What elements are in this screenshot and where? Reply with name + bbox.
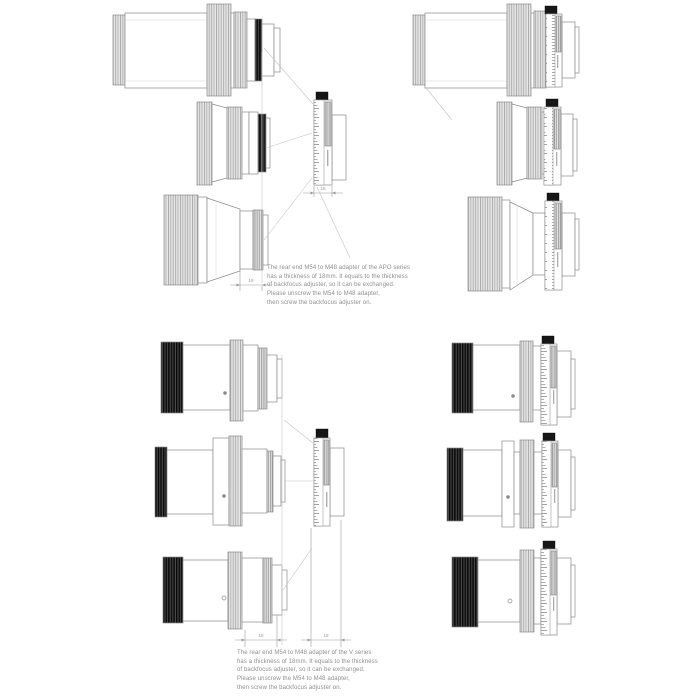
- v-series-note: The rear end M54 to M48 adapter of the V…: [237, 649, 437, 692]
- v-lens-1: [161, 340, 282, 421]
- apo-lens-large: [164, 195, 268, 285]
- v-dimension-adjuster: 18: [301, 520, 351, 647]
- apo-panel: 18 18: [113, 4, 579, 291]
- apo-dimension-adjuster: 18: [303, 186, 343, 197]
- apo-adapter-dim-label: 18: [248, 278, 254, 283]
- v-lens-3-with-adjuster: [452, 541, 575, 635]
- apo-lens-medium: [197, 102, 270, 185]
- apo-series-note: The rear end M54 to M48 adapter of the A…: [267, 264, 467, 307]
- backfocus-adjuster-v: [314, 429, 344, 526]
- v-panel: 18 18: [155, 336, 575, 647]
- v-lens-3: [163, 552, 287, 629]
- backfocus-adjuster-apo: [314, 92, 346, 185]
- v-lens-1-with-adjuster: [452, 336, 575, 425]
- apo-lens-large-with-adjuster: [468, 193, 579, 291]
- apo-adjuster-dim-label: 18: [320, 186, 326, 191]
- v-lens-2: [155, 436, 285, 526]
- v-lens-2-with-adjuster: [447, 433, 575, 528]
- apo-lens-medium-with-adjuster: [497, 99, 577, 185]
- lens-diagram: 18 18: [0, 0, 700, 700]
- v-adapter-dim-label: 18: [258, 633, 264, 638]
- apo-lens-long-with-adjuster: [413, 4, 579, 96]
- apo-lens-long: [113, 4, 280, 96]
- diagram-canvas: 18 18: [0, 0, 700, 700]
- v-adjuster-dim-label: 18: [323, 633, 329, 638]
